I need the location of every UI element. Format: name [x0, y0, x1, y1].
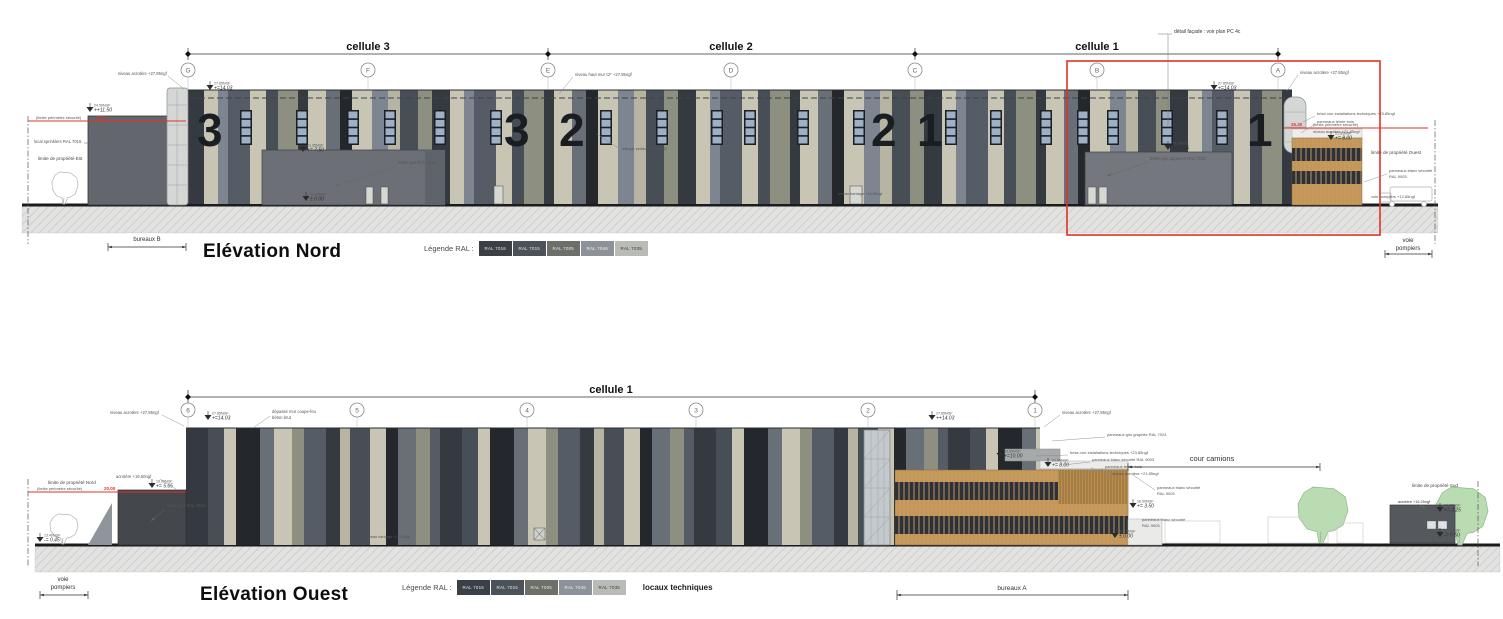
west-facade-stripes — [640, 428, 652, 545]
annotation: béton gris apparent RAL 7015 — [1150, 156, 1206, 161]
cell-number: 1 — [1247, 104, 1273, 156]
level-marker-value: +=14.03 — [214, 86, 233, 92]
level-marker-value: += 3.25 — [1444, 508, 1461, 514]
door — [1088, 187, 1096, 204]
elevation-drawing-canvas: 332211cellule 3cellule 2cellule 1GFEDCBA… — [0, 0, 1503, 619]
window-pane — [992, 112, 1001, 119]
west-facade-stripes — [848, 428, 858, 545]
window-pane — [1163, 120, 1172, 127]
level-marker-value: ± 0.00 — [1119, 534, 1133, 540]
annotation: panneaux blanc sécurité RAL 9003 — [1092, 457, 1155, 462]
north-facade-stripes — [228, 90, 250, 204]
locaux-techniques-label: locaux techniques — [643, 583, 713, 592]
west-facade-stripes — [604, 428, 624, 545]
grid-bubble-label: A — [1276, 67, 1281, 74]
legend-label: Légende RAL : — [402, 583, 452, 592]
perimeter-value: 25.30 — [96, 115, 108, 120]
annex-wall-shade — [425, 150, 445, 205]
legend-swatch: RAL 7015 — [513, 241, 546, 256]
window-pane — [1042, 120, 1051, 127]
north-facade-stripes — [818, 90, 832, 204]
north-facade-stripes — [988, 90, 1004, 204]
cellule-2-label: cellule 2 — [709, 41, 752, 53]
west-facade-stripes — [670, 428, 684, 545]
west-legend: Légende RAL : RAL 7016RAL 7015RAL 7005RA… — [402, 579, 713, 596]
window-pane — [492, 128, 501, 135]
arrow-head — [84, 594, 88, 596]
annotation: niveau bardage +13.85ngf — [366, 535, 411, 539]
window-pane — [799, 120, 808, 127]
window-pane — [349, 128, 358, 135]
level-marker-value: +=14.03 — [212, 416, 231, 422]
legend-swatch: RAL 7016 — [479, 241, 512, 256]
arrow-head — [182, 246, 186, 248]
window-pane — [1163, 128, 1172, 135]
annotation: panneaux teinte bois — [1317, 119, 1354, 124]
north-facade-stripes — [464, 90, 474, 204]
window-pane — [492, 137, 501, 144]
window-pane — [386, 120, 395, 127]
level-marker-value: -= 0.50 — [1444, 533, 1460, 539]
level-marker-value: += 3.50 — [1137, 504, 1154, 510]
dimension-mark — [185, 394, 191, 400]
window-pane — [855, 137, 864, 144]
window-pane — [713, 128, 722, 135]
cellule-1-label: cellule 1 — [1075, 41, 1118, 53]
level-marker-value: -= 0.45 — [44, 538, 60, 544]
north-facade-stripes — [544, 90, 554, 204]
window-pane — [1042, 128, 1051, 135]
west-facade-stripes — [260, 428, 274, 545]
window-pane — [1042, 112, 1051, 119]
annotation: niveau haut mur CF +27.85ngf — [575, 72, 633, 77]
window-pane — [1109, 112, 1118, 119]
window-pane — [799, 137, 808, 144]
level-marker-flag — [37, 537, 44, 542]
arrow-head — [1385, 253, 1389, 255]
voie-pompiers-label: voie — [1402, 238, 1414, 244]
window-pane — [799, 112, 808, 119]
level-marker-flag — [207, 85, 214, 90]
north-facade-stripes — [678, 90, 696, 204]
annotation: béton brut — [272, 415, 292, 420]
door — [494, 186, 503, 204]
window-pane — [298, 137, 307, 144]
west-facade-stripes — [236, 428, 260, 545]
window-pane — [658, 137, 667, 144]
west-facade-stripes — [462, 428, 478, 545]
cell-number: 3 — [504, 104, 530, 156]
window-pane — [602, 120, 611, 127]
west-facade-stripes — [624, 428, 640, 545]
annotation: (limite périmètre sécurité) — [37, 486, 83, 491]
window-ribbon — [895, 516, 1128, 534]
window-pane — [492, 112, 501, 119]
tree — [1298, 487, 1348, 543]
line — [162, 415, 184, 426]
door — [381, 187, 388, 204]
west-facade-stripes — [208, 428, 224, 545]
window-ribbon — [1292, 148, 1362, 161]
west-facade-stripes — [594, 428, 604, 545]
window-pane — [298, 120, 307, 127]
legend-swatch: RAL 7046 — [581, 241, 614, 256]
line — [1052, 437, 1105, 441]
window-pane — [746, 112, 755, 119]
level-marker-value: += 8.00 — [1052, 463, 1069, 469]
line — [1287, 75, 1298, 91]
west-facade-stripes — [274, 428, 292, 545]
voie-pompiers-label: pompiers — [51, 585, 76, 591]
west-facade-stripes — [514, 428, 528, 545]
north-facade-stripes — [942, 90, 956, 204]
north-facade-stripes — [696, 90, 710, 204]
level-marker-value: += 7.50 — [307, 148, 324, 154]
annotation: béton gris RAL 7016 — [167, 503, 206, 508]
dimension-mark — [912, 51, 918, 57]
ground-hatch-west — [35, 546, 1500, 572]
west-facade-stripes — [292, 428, 304, 545]
west-facade-stripes — [800, 428, 812, 545]
window-pane — [242, 128, 251, 135]
window-pane — [349, 120, 358, 127]
grid-bubble-label: 6 — [186, 407, 190, 414]
legend-swatches: RAL 7016RAL 7015RAL 7005RAL 7046RAL 7035 — [479, 241, 649, 256]
bush-outline — [52, 172, 78, 204]
north-facade-stripes — [1004, 90, 1016, 204]
level-marker-value: +=14.03 — [1218, 86, 1237, 92]
level-marker-value: ++11.50 — [94, 108, 112, 114]
window-pane — [992, 128, 1001, 135]
annotation: niveau bardage +13.85ngf — [838, 192, 883, 196]
line — [1044, 415, 1060, 427]
annotation: limite de propriété Ouest — [1371, 150, 1422, 155]
window-pane — [386, 137, 395, 144]
window-pane — [349, 112, 358, 119]
west-facade-stripes — [684, 428, 694, 545]
spiral-stair-tower — [167, 88, 188, 205]
window-pane — [602, 128, 611, 135]
window-pane — [992, 137, 1001, 144]
window-pane — [602, 112, 611, 119]
detail-note: détail façade : voir plan PC 4c — [1174, 29, 1241, 35]
west-facade-stripes — [694, 428, 716, 545]
north-facade-stripes — [800, 90, 818, 204]
arrow-head — [40, 594, 44, 596]
window-pane — [1218, 128, 1227, 135]
annotation: béton gris RAL 7015 — [398, 160, 437, 165]
west-facade-stripes — [652, 428, 670, 545]
north-facade-stripes — [598, 90, 618, 204]
grid-bubble-label: C — [913, 67, 918, 74]
level-marker-value: ++14.03 — [936, 416, 955, 422]
arrow-head — [108, 246, 112, 248]
west-facade-stripes — [326, 428, 340, 545]
west-elevation-title: Elévation Ouest — [200, 584, 348, 606]
fence-outline — [1165, 521, 1220, 543]
west-facade-stripes — [416, 428, 430, 545]
grid-bubble-label: 2 — [866, 407, 870, 414]
annotation: local sprinklers RAL 7015 — [34, 139, 82, 144]
glazed-stair-tower — [864, 430, 890, 545]
west-facade-stripes — [812, 428, 834, 545]
window-pane — [799, 128, 808, 135]
annotation: panneaux teinte bois — [1105, 464, 1142, 469]
window-pane — [242, 137, 251, 144]
west-facade-stripes — [528, 428, 546, 545]
window-pane — [242, 112, 251, 119]
legend-swatch: RAL 7015 — [491, 580, 524, 595]
window-pane — [1218, 112, 1227, 119]
level-marker-flag — [205, 415, 212, 420]
grid-bubble-label: B — [1095, 67, 1099, 74]
west-facade-stripes — [304, 428, 326, 545]
dimension-mark — [185, 51, 191, 57]
grid-bubble-label: E — [546, 67, 551, 74]
annotation: niveau acrotère +27.85ngf — [1300, 70, 1350, 75]
north-facade-stripes — [758, 90, 770, 204]
west-facade-stripes — [224, 428, 236, 545]
window-pane — [947, 112, 956, 119]
north-facade-stripes — [832, 90, 844, 204]
annotation: lettrage peinture RAL 9011 — [622, 147, 667, 151]
window-pane — [1218, 137, 1227, 144]
cell-number: 2 — [559, 104, 585, 156]
grid-bubble-label: F — [366, 67, 370, 74]
truck-wheel — [1390, 202, 1395, 207]
window-pane — [1163, 112, 1172, 119]
dimension-mark — [1032, 394, 1038, 400]
west-facade-stripes — [782, 428, 800, 545]
window-pane — [1042, 137, 1051, 144]
level-marker-flag — [87, 107, 94, 112]
sprinkler-annex — [118, 490, 186, 545]
arrow-head — [897, 594, 901, 596]
level-marker-flag — [1211, 85, 1218, 90]
annotation: niveau acrotère +21.85ngf — [1112, 471, 1159, 476]
bureaux-a-label: bureaux A — [997, 585, 1027, 592]
window-pane — [1079, 112, 1088, 119]
window-pane — [947, 128, 956, 135]
legend-label: Légende RAL : — [424, 244, 474, 253]
window-pane — [855, 128, 864, 135]
annotation: RAL 9003 — [1389, 174, 1407, 179]
window-pane — [349, 137, 358, 144]
annotation: niveau acrotère +27.85ngf — [1062, 410, 1112, 415]
window-pane — [1079, 120, 1088, 127]
west-facade-stripes — [490, 428, 514, 545]
window-pane — [1079, 128, 1088, 135]
legend-swatch: RAL 7005 — [525, 580, 558, 595]
cell-number: 2 — [871, 104, 897, 156]
west-facade-stripes — [440, 428, 462, 545]
window-pane — [242, 120, 251, 127]
window-pane — [386, 128, 395, 135]
window-pane — [1109, 128, 1118, 135]
west-facade-stripes — [340, 428, 350, 545]
west-facade-stripes — [558, 428, 580, 545]
north-facade-stripes — [450, 90, 464, 204]
annotation: panneaux blanc sécurité — [1389, 168, 1433, 173]
north-facade-stripes — [474, 90, 496, 204]
window-pane — [992, 120, 1001, 127]
annotation: acrotère +15.25ngf — [1398, 500, 1431, 504]
window-pane — [436, 128, 445, 135]
annotation: acrotère +19.50ngf — [116, 474, 152, 479]
annotation: panneaux gris graphite RAL 7024 — [1107, 432, 1167, 437]
legend-swatches: RAL 7016RAL 7015RAL 7005RAL 7046RAL 7035 — [457, 580, 627, 595]
annotation: voie pompiers +12.85ngf — [1371, 194, 1416, 199]
legend-swatch: RAL 7046 — [559, 580, 592, 595]
grid-bubble-label: G — [185, 67, 190, 74]
door — [1099, 187, 1107, 204]
north-facade-stripes — [742, 90, 758, 204]
window-pane — [1079, 137, 1088, 144]
cell-number: 1 — [917, 104, 943, 156]
window-pane — [1109, 137, 1118, 144]
annotation: niveau acrotère +27.85ngf — [118, 71, 168, 76]
north-facade-stripes — [966, 90, 988, 204]
level-marker-flag — [1130, 503, 1137, 508]
cour-camions-label: cour camions — [1190, 454, 1235, 463]
west-facade-stripes — [732, 428, 744, 545]
door — [366, 187, 373, 204]
ground-hatch-north — [22, 206, 1438, 233]
arrow-head — [1428, 253, 1432, 255]
cellule-1-label-west: cellule 1 — [589, 384, 632, 396]
window-pane — [746, 120, 755, 127]
tree-trunk — [62, 538, 63, 544]
arrow-head — [1316, 466, 1320, 468]
grid-bubble-label: 5 — [355, 407, 359, 414]
annotation: RAL 9003 — [1157, 491, 1175, 496]
line — [168, 76, 184, 89]
window-ribbon — [1292, 171, 1362, 184]
line — [1133, 475, 1155, 490]
perimeter-value: 25.30 — [1291, 122, 1303, 127]
window-pane — [386, 112, 395, 119]
level-marker-value: += 5.65 — [1172, 146, 1189, 152]
annex-wall — [262, 150, 445, 205]
level-marker-flag — [149, 483, 156, 488]
window-pane — [855, 120, 864, 127]
truck-wheel — [1422, 202, 1427, 207]
west-facade-stripes — [834, 428, 848, 545]
west-facade-stripes — [398, 428, 416, 545]
west-facade-stripes — [370, 428, 386, 545]
annotation: panneaux blanc sécurité — [1157, 485, 1201, 490]
west-facade-stripes — [186, 428, 208, 545]
north-facade-stripes — [956, 90, 966, 204]
dimension-mark — [545, 51, 551, 57]
legend-swatch: RAL 7035 — [593, 580, 626, 595]
annotation: limite de propriété Nord — [48, 480, 96, 485]
window-pane — [1163, 137, 1172, 144]
level-marker-value: += 5.65 — [156, 484, 173, 490]
legend-swatch: RAL 7005 — [547, 241, 580, 256]
window-pane — [298, 112, 307, 119]
annotation: brise-vue installations techniques +23.8… — [1317, 111, 1396, 116]
west-facade-stripes — [478, 428, 490, 545]
cellule-3-label: cellule 3 — [346, 41, 389, 53]
grid-bubble-label: 3 — [694, 407, 698, 414]
window-pane — [436, 137, 445, 144]
west-facade-stripes — [580, 428, 594, 545]
level-marker-value: += 8.00 — [1335, 136, 1352, 142]
window — [1427, 521, 1436, 529]
annotation: niveau acrotère +21.85ngf — [1313, 129, 1360, 134]
dimension-mark — [1275, 51, 1281, 57]
voie-pompiers-label: pompiers — [1396, 246, 1421, 252]
north-legend: Légende RAL : RAL 7016RAL 7015RAL 7005RA… — [424, 240, 649, 257]
window-pane — [947, 120, 956, 127]
west-facade-stripes — [546, 428, 558, 545]
north-facade-stripes — [586, 90, 598, 204]
north-facade-stripes — [720, 90, 742, 204]
level-marker-flag — [929, 415, 936, 420]
level-marker-value: ± 0.00 — [310, 197, 324, 203]
tree-trunk — [63, 198, 64, 204]
annotation: brise-vue installations techniques +23.8… — [1070, 450, 1149, 455]
window-pane — [713, 137, 722, 144]
cell-number: 3 — [197, 104, 223, 156]
west-facade-stripes — [768, 428, 782, 545]
grid-bubble-label: 4 — [525, 407, 529, 414]
bureaux-b-label: bureaux B — [133, 237, 160, 243]
window-pane — [492, 120, 501, 127]
window-pane — [855, 112, 864, 119]
line — [253, 416, 270, 428]
grid-bubble-label: D — [729, 67, 734, 74]
north-facade-stripes — [710, 90, 720, 204]
ramp-triangle — [88, 503, 112, 545]
annotation: panneaux blanc sécurité — [1142, 517, 1186, 522]
window-pane — [746, 128, 755, 135]
voie-pompiers-label: voie — [57, 577, 69, 583]
annotation: limite de propriété Est — [38, 156, 83, 161]
annotation: limite de propriété Sud — [1412, 483, 1458, 488]
window-pane — [1218, 120, 1227, 127]
annotation: dépassé mur coupe-feu — [272, 409, 317, 414]
north-facade-stripes — [770, 90, 790, 204]
annotation: niveau acrotère +27.85ngf — [110, 410, 160, 415]
north-facade-stripes — [1064, 90, 1078, 204]
north-facade-stripes — [1046, 90, 1064, 204]
window-pane — [298, 128, 307, 135]
west-facade-stripes — [430, 428, 440, 545]
north-elevation-title: Elévation Nord — [203, 241, 341, 263]
window-pane — [658, 120, 667, 127]
north-facade-stripes — [790, 90, 800, 204]
window-pane — [713, 112, 722, 119]
north-facade-stripes — [1016, 90, 1036, 204]
window-pane — [658, 112, 667, 119]
annotation: (limite périmètre sécurité) — [36, 115, 82, 120]
west-facade-stripes — [744, 428, 768, 545]
level-marker-value: +=10.00 — [1004, 454, 1023, 460]
legend-swatch: RAL 7035 — [615, 241, 648, 256]
annotation: RAL 9003 — [1142, 523, 1160, 528]
window-pane — [746, 137, 755, 144]
north-facade-stripes — [1036, 90, 1046, 204]
perimeter-value: 20.00 — [104, 486, 116, 491]
window-pane — [713, 120, 722, 127]
window-pane — [436, 112, 445, 119]
west-facade-stripes — [350, 428, 370, 545]
window-pane — [436, 120, 445, 127]
grid-bubble-label: 1 — [1033, 407, 1037, 414]
legend-swatch: RAL 7016 — [457, 580, 490, 595]
